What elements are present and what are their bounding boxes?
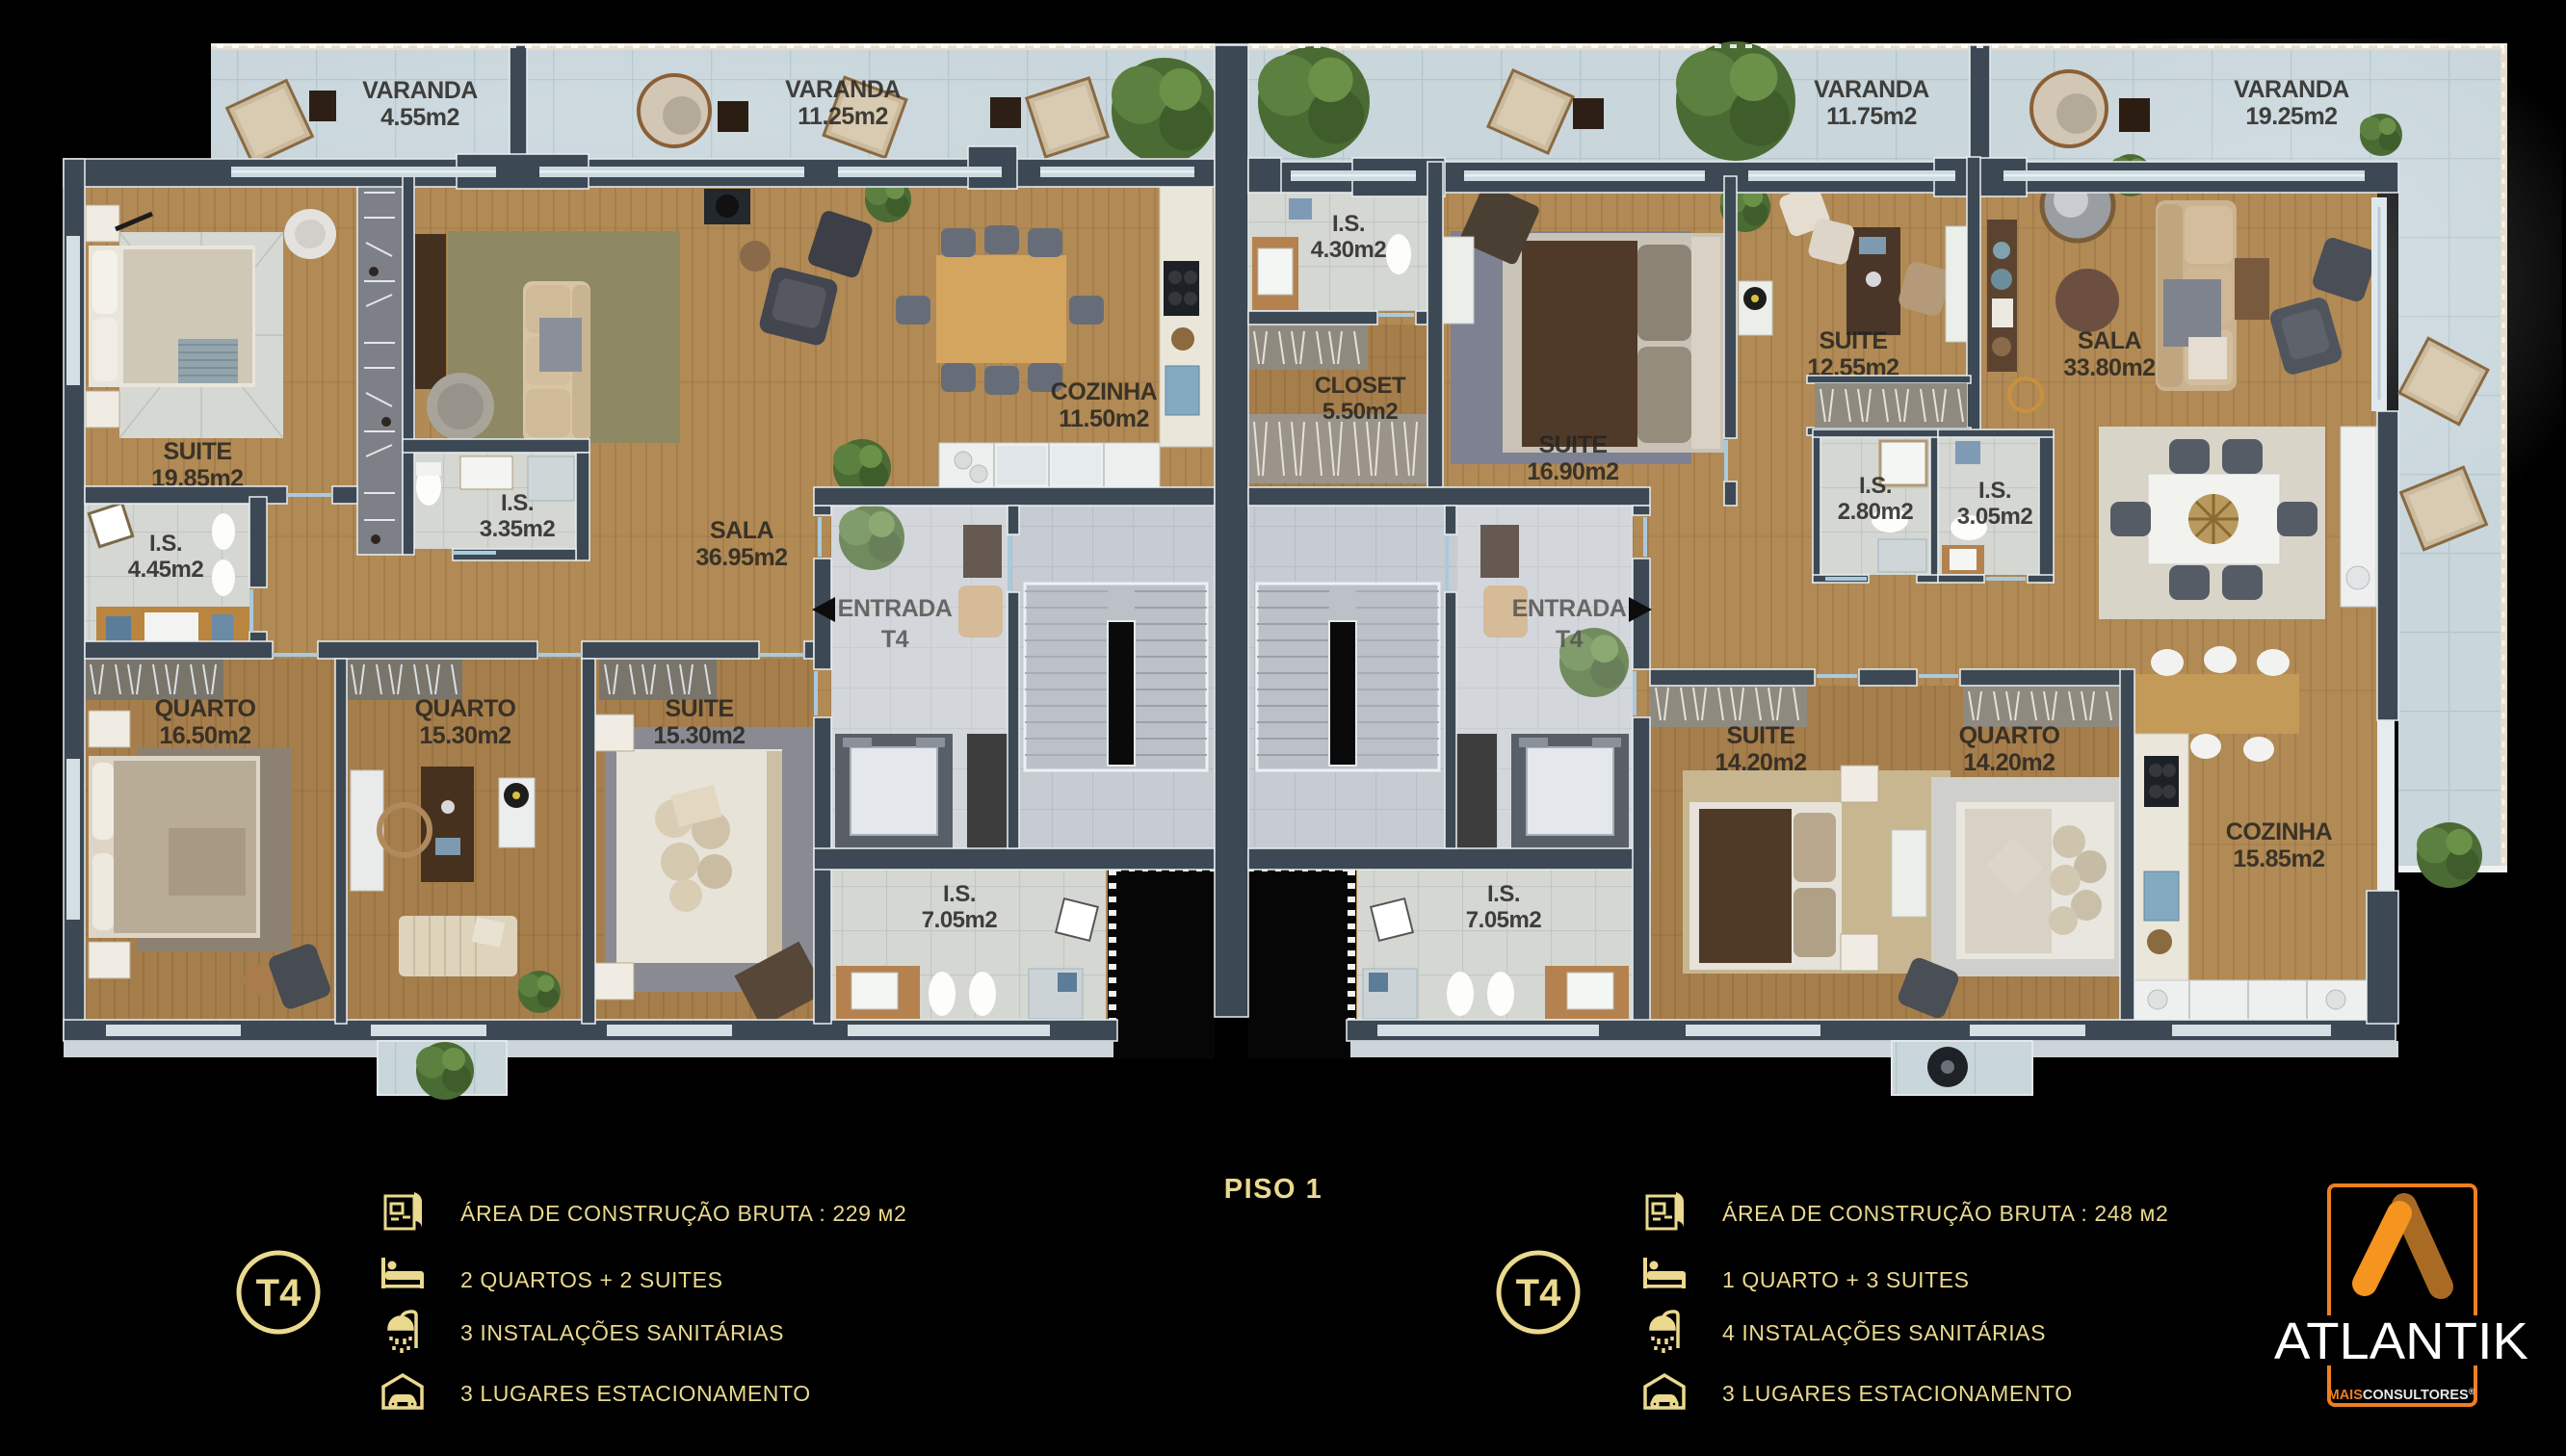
svg-text:19.25m2: 19.25m2 <box>2245 103 2337 130</box>
svg-text:11.50m2: 11.50m2 <box>1059 405 1149 432</box>
svg-text:15.85m2: 15.85m2 <box>2233 845 2324 872</box>
svg-text:15.30m2: 15.30m2 <box>653 722 745 749</box>
svg-text:5.50m2: 5.50m2 <box>1322 399 1399 425</box>
svg-text:11.25m2: 11.25m2 <box>798 103 888 130</box>
svg-text:16.50m2: 16.50m2 <box>159 722 250 749</box>
svg-text:T4: T4 <box>256 1272 301 1314</box>
svg-text:QUARTO: QUARTO <box>155 695 256 722</box>
svg-text:11.75m2: 11.75m2 <box>1826 103 1917 130</box>
svg-text:36.95m2: 36.95m2 <box>695 544 787 571</box>
svg-text:SUITE: SUITE <box>665 695 733 722</box>
svg-text:ÁREA DE CONSTRUÇÃO BRUTA : 22: ÁREA DE CONSTRUÇÃO BRUTA : 229 м2 <box>460 1201 906 1226</box>
svg-text:I.S.: I.S. <box>1859 473 1892 499</box>
svg-text:2 QUARTOS + 2 SUITES: 2 QUARTOS + 2 SUITES <box>460 1267 723 1292</box>
svg-text:7.05m2: 7.05m2 <box>922 907 998 933</box>
svg-text:I.S.: I.S. <box>149 531 182 557</box>
svg-text:I.S.: I.S. <box>1332 211 1365 237</box>
svg-text:16.90m2: 16.90m2 <box>1527 458 1618 485</box>
svg-text:14.20m2: 14.20m2 <box>1715 749 1806 776</box>
svg-text:VARANDA: VARANDA <box>2234 76 2349 103</box>
svg-text:3 INSTALAÇÕES SANITÁRIAS: 3 INSTALAÇÕES SANITÁRIAS <box>460 1319 784 1345</box>
svg-text:ATLANTIK: ATLANTIK <box>2274 1313 2528 1370</box>
svg-text:COZINHA: COZINHA <box>1051 378 1158 405</box>
svg-text:VARANDA: VARANDA <box>362 77 478 104</box>
svg-text:I.S.: I.S. <box>501 490 534 516</box>
svg-text:SUITE: SUITE <box>163 438 231 465</box>
svg-text:SUITE: SUITE <box>1819 327 1887 354</box>
svg-text:3 LUGARES ESTACIONAMENTO: 3 LUGARES ESTACIONAMENTO <box>1722 1381 2073 1406</box>
svg-text:4 INSTALAÇÕES SANITÁRIAS: 4 INSTALAÇÕES SANITÁRIAS <box>1722 1319 2046 1345</box>
svg-text:I.S.: I.S. <box>943 881 976 907</box>
svg-text:3.35m2: 3.35m2 <box>480 516 556 542</box>
svg-text:3 LUGARES ESTACIONAMENTO: 3 LUGARES ESTACIONAMENTO <box>460 1381 811 1406</box>
svg-text:SUITE: SUITE <box>1538 431 1607 458</box>
svg-text:COZINHA: COZINHA <box>2226 819 2333 845</box>
svg-text:2.80m2: 2.80m2 <box>1838 499 1914 525</box>
svg-text:VARANDA: VARANDA <box>1814 76 1929 103</box>
svg-text:3.05m2: 3.05m2 <box>1957 504 2033 530</box>
svg-text:4.30m2: 4.30m2 <box>1311 237 1387 263</box>
svg-text:PISO 1: PISO 1 <box>1224 1174 1323 1205</box>
svg-text:I.S.: I.S. <box>1487 881 1520 907</box>
svg-text:SALA: SALA <box>710 517 774 544</box>
svg-text:VARANDA: VARANDA <box>785 76 901 103</box>
svg-text:4.45m2: 4.45m2 <box>128 557 204 583</box>
svg-text:CLOSET: CLOSET <box>1315 373 1406 399</box>
svg-text:7.05m2: 7.05m2 <box>1466 907 1542 933</box>
svg-text:14.20m2: 14.20m2 <box>1963 749 2055 776</box>
svg-text:I.S.: I.S. <box>1978 478 2011 504</box>
svg-text:ÁREA DE CONSTRUÇÃO BRUTA : 24: ÁREA DE CONSTRUÇÃO BRUTA : 248 м2 <box>1722 1201 2168 1226</box>
svg-text:SALA: SALA <box>2078 327 2142 354</box>
svg-text:T4: T4 <box>1516 1272 1561 1314</box>
svg-text:SUITE: SUITE <box>1726 722 1794 749</box>
svg-text:MAISCONSULTORES®: MAISCONSULTORES® <box>2328 1387 2475 1403</box>
svg-text:4.55m2: 4.55m2 <box>380 104 459 131</box>
svg-text:33.80m2: 33.80m2 <box>2063 354 2155 381</box>
svg-text:QUARTO: QUARTO <box>1959 722 2060 749</box>
svg-text:1 QUARTO + 3 SUITES: 1 QUARTO + 3 SUITES <box>1722 1267 1970 1292</box>
svg-text:QUARTO: QUARTO <box>415 695 516 722</box>
svg-text:15.30m2: 15.30m2 <box>419 722 511 749</box>
